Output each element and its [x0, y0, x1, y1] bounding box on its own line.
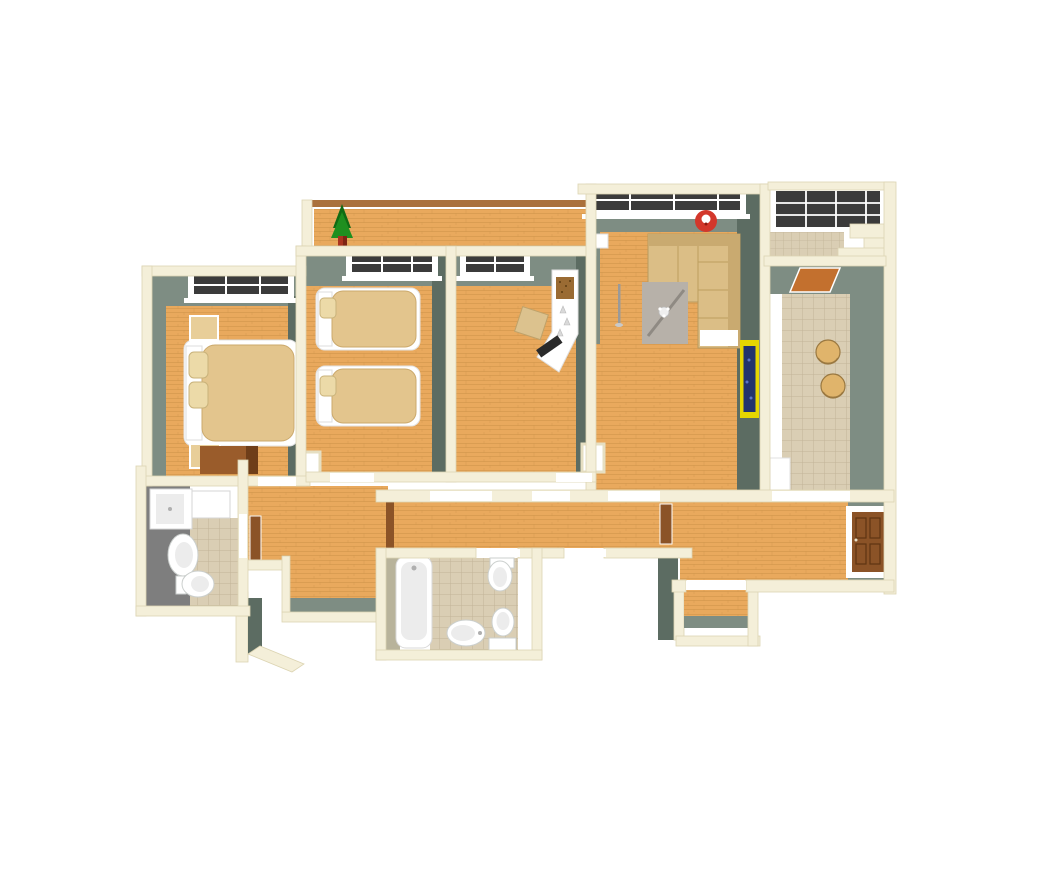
master-north-wall [142, 266, 306, 276]
double-bed [184, 340, 298, 446]
red-wall-clock [695, 210, 717, 232]
living-room [582, 186, 762, 492]
washing-machine [192, 491, 230, 518]
kids-bedroom [306, 250, 446, 472]
corridor-floor [388, 502, 680, 548]
appendix-floor [290, 560, 378, 598]
corridor-south-wall-1 [376, 548, 476, 558]
entrance-door [846, 506, 890, 578]
corkboard [555, 276, 575, 300]
wc-west-wall [136, 466, 146, 616]
corridor-west-door-edge [386, 502, 394, 548]
single-bed-upper [316, 288, 420, 350]
bathroom-east-wall [532, 548, 542, 660]
floor-plan-render [0, 0, 1043, 893]
bidet [447, 620, 485, 646]
appendix-wall-bottom [282, 612, 386, 622]
bar-stool-2 [821, 374, 845, 398]
bathroom-white-strip [518, 558, 528, 650]
hall-south-wall-1 [672, 580, 686, 592]
bathroom [386, 556, 528, 651]
bar-stool-1 [816, 340, 840, 364]
corridor-east-door [660, 504, 672, 544]
corridor-south-wall-3 [604, 548, 692, 558]
balcony-tiled-floor [770, 228, 844, 256]
kids-study-wall [446, 246, 456, 482]
hall-south-wall-2 [746, 580, 894, 592]
kids-east-wall-face [432, 256, 446, 472]
vestibule-wall-face [684, 616, 748, 628]
vestibule-wall-right [748, 588, 758, 646]
single-bed-lower [316, 366, 420, 426]
living-north-wall [578, 184, 770, 194]
study [456, 250, 586, 472]
master-west-wall-face [152, 276, 166, 476]
bathtub [396, 556, 432, 648]
terrace-railing [306, 200, 594, 207]
kitchen-east-wall-face [850, 266, 884, 492]
corridor [386, 502, 680, 548]
wc [146, 486, 238, 606]
nightstand-top [190, 316, 218, 340]
east-outer-wall [884, 182, 896, 594]
floor-plan-canvas [0, 0, 1043, 893]
balcony-kitchen-wall [764, 256, 886, 266]
glazed-balcony [770, 186, 886, 258]
vestibule-wall-bottom [676, 636, 760, 646]
wc-sink [168, 534, 198, 576]
white-throw [700, 330, 738, 346]
gray-rug [642, 282, 688, 344]
master-bedroom-window [184, 272, 298, 303]
entry-hall-floor [680, 502, 850, 580]
inner-hall-floor [248, 486, 388, 560]
kitchen-counter-block [770, 458, 790, 492]
master-kids-wall [296, 246, 306, 486]
open-door-master [250, 516, 261, 560]
shower-cabin [150, 489, 192, 529]
bathroom-west-wall [376, 548, 386, 660]
kitchen [770, 266, 884, 492]
wardrobe [200, 446, 258, 474]
west-outer-wall [142, 266, 152, 486]
master-bedroom [152, 272, 298, 476]
living-kitchen-wall [760, 184, 770, 492]
appendix-inner-wall [282, 556, 290, 612]
bathroom-south-wall [376, 650, 542, 660]
yellow-framed-picture [740, 340, 759, 418]
study-living-wall [586, 184, 596, 492]
wc-south-wall [136, 606, 250, 616]
balcony-north-wall [768, 182, 894, 190]
vestibule-wall-left [674, 588, 684, 640]
appendix-wall-face [290, 598, 378, 612]
